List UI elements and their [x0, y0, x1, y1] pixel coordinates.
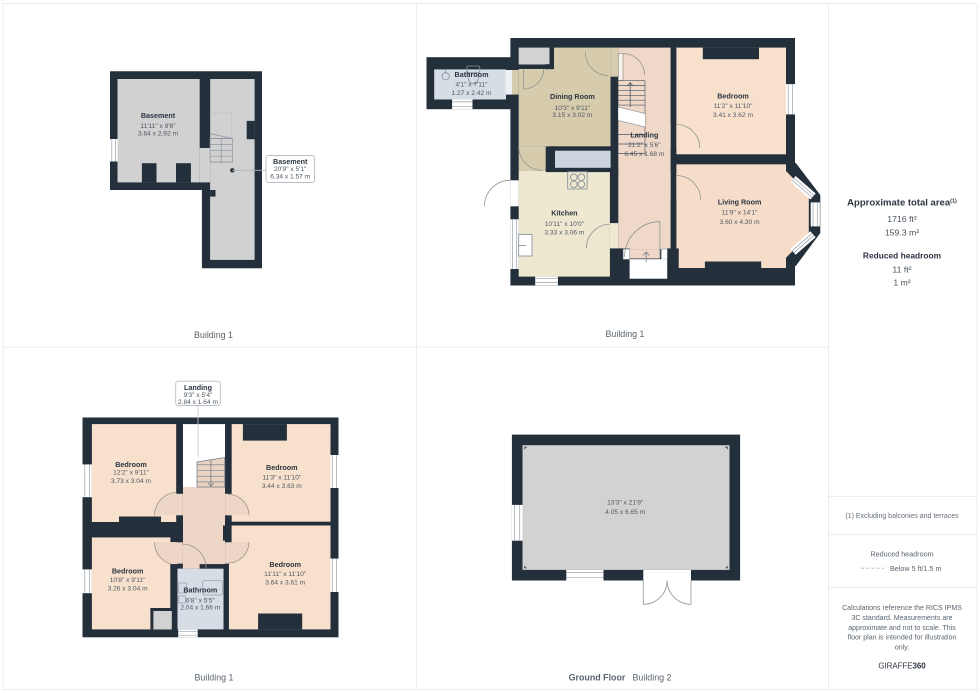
svg-text:Living Room: Living Room: [718, 197, 762, 206]
svg-text:12'2" x 9'11": 12'2" x 9'11": [113, 470, 149, 477]
svg-text:11'11" x 11'10": 11'11" x 11'10": [264, 571, 307, 578]
svg-text:Building 1: Building 1: [606, 329, 645, 339]
svg-text:approximate and not to scale.: approximate and not to scale. This: [848, 625, 956, 632]
svg-text:3.73 x 3.04 m: 3.73 x 3.04 m: [111, 478, 151, 485]
svg-text:Building 1: Building 1: [194, 330, 233, 340]
svg-text:Bedroom: Bedroom: [112, 567, 144, 576]
svg-text:3.33 x 3.06 m: 3.33 x 3.06 m: [544, 230, 584, 237]
svg-text:Building 2: Building 2: [633, 672, 672, 682]
svg-text:Bedroom: Bedroom: [269, 560, 301, 569]
svg-text:(1) Excluding balconies and te: (1) Excluding balconies and terraces: [845, 513, 959, 520]
svg-text:6'8" x 5'5": 6'8" x 5'5": [186, 597, 215, 604]
svg-text:Below 5 ft/1.5 m: Below 5 ft/1.5 m: [890, 564, 942, 573]
svg-text:Approximate total area(1): Approximate total area(1): [847, 198, 957, 209]
svg-text:1716 ft²: 1716 ft²: [887, 214, 917, 224]
svg-text:13'3" x 21'9": 13'3" x 21'9": [607, 500, 644, 507]
svg-text:3.26 x 3.04 m: 3.26 x 3.04 m: [108, 586, 148, 593]
svg-text:floor plan is intended for ill: floor plan is intended for illustration: [848, 634, 957, 641]
svg-text:159.3 m²: 159.3 m²: [885, 227, 919, 237]
svg-text:Ground Floor: Ground Floor: [569, 672, 626, 682]
svg-text:only.: only.: [895, 644, 909, 651]
svg-text:1.27 x 2.42 m: 1.27 x 2.42 m: [452, 90, 492, 97]
svg-text:10'8" x 9'11": 10'8" x 9'11": [110, 577, 146, 584]
svg-text:GIRAFFE360: GIRAFFE360: [878, 662, 926, 671]
svg-text:Landing: Landing: [184, 383, 212, 392]
svg-text:Building 1: Building 1: [195, 672, 234, 682]
svg-text:20'9" x 5'1": 20'9" x 5'1": [274, 166, 307, 173]
svg-text:11'11" x 9'6": 11'11" x 9'6": [140, 123, 176, 130]
svg-text:2.84 x 1.64 m: 2.84 x 1.64 m: [178, 399, 218, 406]
svg-text:11'3" x 11'10": 11'3" x 11'10": [262, 474, 302, 481]
svg-text:Calculations reference the RIC: Calculations reference the RICS IPMS: [842, 605, 962, 612]
svg-text:6.45 x 1.68 m: 6.45 x 1.68 m: [624, 151, 664, 158]
svg-text:Bathroom: Bathroom: [183, 585, 217, 594]
svg-text:1 m²: 1 m²: [893, 278, 910, 288]
svg-text:11 ft²: 11 ft²: [892, 264, 911, 274]
svg-text:Bedroom: Bedroom: [717, 92, 749, 101]
svg-text:10'11" x 10'0": 10'11" x 10'0": [545, 221, 585, 228]
svg-text:Bedroom: Bedroom: [266, 463, 298, 472]
svg-text:11'2" x 11'10": 11'2" x 11'10": [714, 103, 754, 110]
svg-text:4'1" x 7'11": 4'1" x 7'11": [455, 81, 488, 88]
svg-text:3.44 x 3.63 m: 3.44 x 3.63 m: [262, 483, 302, 490]
svg-text:Bathroom: Bathroom: [455, 70, 489, 79]
svg-text:Reduced headroom: Reduced headroom: [863, 250, 941, 260]
svg-text:Kitchen: Kitchen: [551, 208, 577, 217]
svg-text:2.04 x 1.66 m: 2.04 x 1.66 m: [180, 604, 220, 611]
svg-text:3.64 x 2.92 m: 3.64 x 2.92 m: [138, 130, 178, 137]
svg-text:Reduced headroom: Reduced headroom: [870, 549, 933, 558]
svg-text:Landing: Landing: [630, 131, 658, 140]
svg-text:Basement: Basement: [273, 157, 308, 166]
svg-text:11'9" x 14'1": 11'9" x 14'1": [722, 210, 758, 217]
svg-text:Basement: Basement: [141, 111, 176, 120]
svg-text:6.34 x 1.57 m: 6.34 x 1.57 m: [270, 173, 310, 180]
svg-text:4.05 x 6.65 m: 4.05 x 6.65 m: [605, 509, 645, 516]
svg-text:3.60 x 4.30 m: 3.60 x 4.30 m: [720, 219, 760, 226]
svg-text:Bedroom: Bedroom: [115, 460, 147, 469]
svg-text:10'3" x 9'11": 10'3" x 9'11": [555, 105, 591, 112]
svg-text:3C standard. Measurements are: 3C standard. Measurements are: [851, 615, 952, 622]
svg-text:3.64 x 3.61 m: 3.64 x 3.61 m: [265, 580, 305, 587]
svg-text:Dining Room: Dining Room: [550, 92, 595, 101]
svg-text:3.15 x 3.02 m: 3.15 x 3.02 m: [552, 112, 592, 119]
svg-text:3.41 x 3.62 m: 3.41 x 3.62 m: [713, 112, 753, 119]
svg-text:21'2" x 5'6": 21'2" x 5'6": [628, 142, 661, 149]
